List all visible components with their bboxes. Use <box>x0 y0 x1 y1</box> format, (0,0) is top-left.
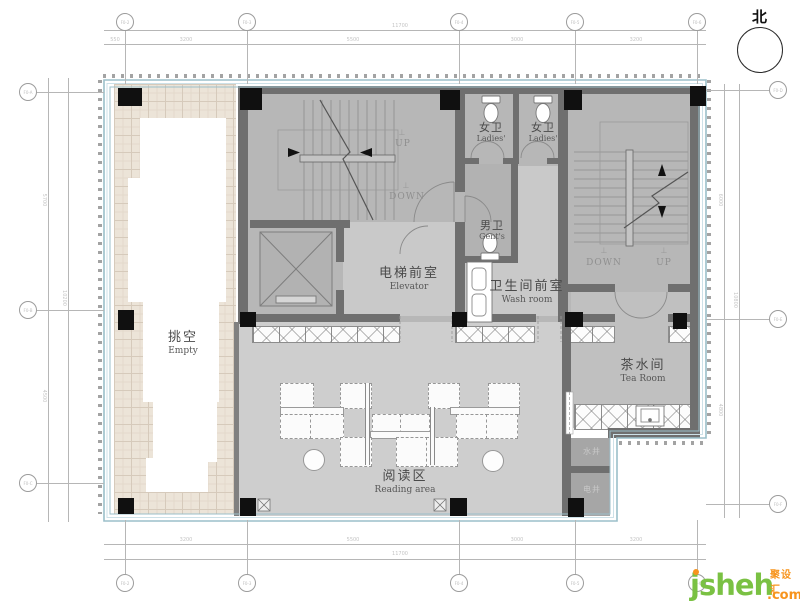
room-label-empty: 挑空 Empty <box>168 330 198 356</box>
north-label: 北 <box>752 6 767 27</box>
grid-bubble: F0-F <box>769 495 787 513</box>
dim-value: 3200 <box>180 37 193 43</box>
dim-line <box>104 544 706 545</box>
grid-stem <box>459 520 460 574</box>
grid-stem <box>706 504 769 505</box>
grid-stem <box>459 31 460 84</box>
dim-value: 3000 <box>511 37 524 43</box>
grid-bubble-label: F0-D <box>773 88 782 93</box>
dim-value: 4500 <box>41 390 47 403</box>
logo-text: jsheh <box>690 568 773 602</box>
room-label-en: Elevator <box>379 282 439 293</box>
room-label-zh: 卫生间前室 <box>489 279 564 295</box>
room-label-washroom: 卫生间前室 Wash room <box>489 279 564 305</box>
room-label-zh: 茶水间 <box>620 358 665 374</box>
dim-line <box>48 78 49 522</box>
logo-dot-icon <box>693 569 699 575</box>
column <box>118 310 134 330</box>
grid-bubble-label: F0-4 <box>455 20 464 25</box>
elevator-shaft <box>260 232 332 306</box>
grid-bubble-label: F0-B <box>24 308 33 313</box>
grid-bubble: F0-6 <box>688 13 706 31</box>
logo-tld-text: .com <box>767 588 800 603</box>
grid-bubble-label: F0-3 <box>243 581 252 586</box>
dim-value: 5500 <box>347 537 360 543</box>
grid-bubble-label: F0-A <box>24 90 33 95</box>
dim-line <box>104 30 706 31</box>
column <box>240 312 256 327</box>
column <box>568 498 584 517</box>
wash-basin-counter <box>467 262 492 322</box>
column <box>690 86 706 106</box>
room-label-zh: 阅读区 <box>375 469 436 485</box>
grid-bubble: F0-3 <box>238 13 256 31</box>
grid-stem <box>37 92 104 93</box>
grid-bubble: F0-C <box>19 474 37 492</box>
column <box>240 498 256 516</box>
column <box>564 90 582 110</box>
grid-bubble-label: F0-5 <box>571 581 580 586</box>
up-mark: ⊥ <box>661 246 668 255</box>
room-label-en: Ladies' <box>529 134 558 144</box>
room-label-zh: 挑空 <box>168 330 198 346</box>
grid-stem <box>697 31 698 84</box>
grid-stem <box>706 90 769 91</box>
grid-stem <box>37 310 104 311</box>
dim-line <box>104 559 706 560</box>
dim-value: 5500 <box>347 37 360 43</box>
column <box>440 90 460 110</box>
grid-bubble-label: F0-2 <box>121 20 130 25</box>
stair-direction-arrow <box>658 206 666 218</box>
dim-value: 11700 <box>392 23 408 29</box>
grid-bubble: F0-5 <box>566 574 584 592</box>
column <box>240 88 262 110</box>
dim-value: 6000 <box>717 194 723 207</box>
grid-bubble: F0-3 <box>238 574 256 592</box>
grid-bubble-label: F0-6 <box>693 20 702 25</box>
dim-value: 3200 <box>630 37 643 43</box>
room-label-elevator-lobby: 电梯前室 Elevator <box>379 266 439 292</box>
up-label: UP <box>656 258 672 268</box>
dim-value: 550 <box>110 37 120 43</box>
room-label-zh: 电梯前室 <box>379 266 439 282</box>
grid-bubble-label: F0-C <box>23 481 32 486</box>
room-label-ladies-1: 女卫 Ladies' <box>477 121 506 144</box>
grid-stem <box>247 520 248 574</box>
grid-bubble-label: F0-5 <box>571 20 580 25</box>
room-label-en: Gent's <box>479 232 505 242</box>
grid-bubble: F0-2 <box>116 574 134 592</box>
down-label: DOWN <box>389 192 425 202</box>
stair-direction-arrow <box>288 148 300 157</box>
down-mark: ⊥ <box>403 181 410 190</box>
label-water-shaft: 水井 <box>583 446 601 457</box>
north-arrow-circle <box>737 27 783 73</box>
dim-value: 3200 <box>630 537 643 543</box>
grid-stem <box>575 520 576 574</box>
up-mark: ⊥ <box>399 128 406 137</box>
dim-value: 3000 <box>511 537 524 543</box>
down-label: DOWN <box>586 258 622 268</box>
down-mark: ⊥ <box>601 246 608 255</box>
room-label-en: Ladies' <box>477 134 506 144</box>
dim-line <box>68 78 69 522</box>
shaft-access-panel <box>566 392 573 434</box>
room-label-en: Wash room <box>489 295 564 306</box>
room-label-zh: 女卫 <box>529 121 558 134</box>
dim-value: 5700 <box>41 194 47 207</box>
dim-value: 10200 <box>61 290 67 306</box>
column <box>673 313 687 329</box>
room-label-ladies-2: 女卫 Ladies' <box>529 121 558 144</box>
grid-stem <box>575 31 576 84</box>
column <box>452 312 467 327</box>
room-label-en: Reading area <box>375 485 436 496</box>
label-electric-shaft: 电井 <box>583 484 601 495</box>
grid-bubble-label: F0-E <box>774 317 783 322</box>
grid-stem <box>706 319 769 320</box>
dim-line <box>739 84 740 518</box>
room-label-en: Empty <box>168 346 198 357</box>
watermark-logo: jsheh 聚设汇 .com <box>688 566 800 606</box>
grid-bubble: F0-D <box>769 81 787 99</box>
column <box>565 312 583 327</box>
stair-left <box>278 100 398 220</box>
floor-plan-canvas: 挑空 Empty 电梯前室 Elevator 女卫 Ladies' 女卫 Lad… <box>0 0 800 608</box>
grid-bubble-label: F0-F <box>774 502 783 507</box>
grid-stem <box>125 31 126 84</box>
grid-bubble-label: F0-2 <box>121 581 130 586</box>
grid-bubble-label: F0-3 <box>243 20 252 25</box>
column <box>450 498 467 516</box>
room-label-en: Tea Room <box>620 374 665 385</box>
dim-line <box>724 84 725 518</box>
room-label-zh: 女卫 <box>477 121 506 134</box>
room-label-tea-room: 茶水间 Tea Room <box>620 358 665 384</box>
grid-bubble: F0-5 <box>566 13 584 31</box>
grid-stem <box>247 31 248 84</box>
floor-drain-mark <box>258 499 446 511</box>
room-label-gents: 男卫 Gent's <box>479 219 505 242</box>
room-label-zh: 男卫 <box>479 219 505 232</box>
up-label: UP <box>395 139 411 149</box>
grid-bubble: F0-4 <box>450 13 468 31</box>
grid-stem <box>125 520 126 574</box>
stair-right <box>574 122 688 246</box>
grid-bubble-label: F0-4 <box>455 581 464 586</box>
grid-bubble: F0-E <box>769 310 787 328</box>
grid-bubble: F0-B <box>19 301 37 319</box>
grid-stem <box>37 483 104 484</box>
dim-value: 4800 <box>717 404 723 417</box>
dim-value: 10800 <box>732 292 738 308</box>
dim-line <box>104 44 706 45</box>
grid-bubble: F0-A <box>19 83 37 101</box>
grid-bubble: F0-4 <box>450 574 468 592</box>
room-label-reading-area: 阅读区 Reading area <box>375 469 436 495</box>
dim-value: 3200 <box>180 537 193 543</box>
grid-bubble: F0-2 <box>116 13 134 31</box>
column <box>118 498 134 514</box>
dim-value: 11700 <box>392 551 408 557</box>
tea-sink <box>636 406 664 426</box>
column <box>118 88 142 106</box>
